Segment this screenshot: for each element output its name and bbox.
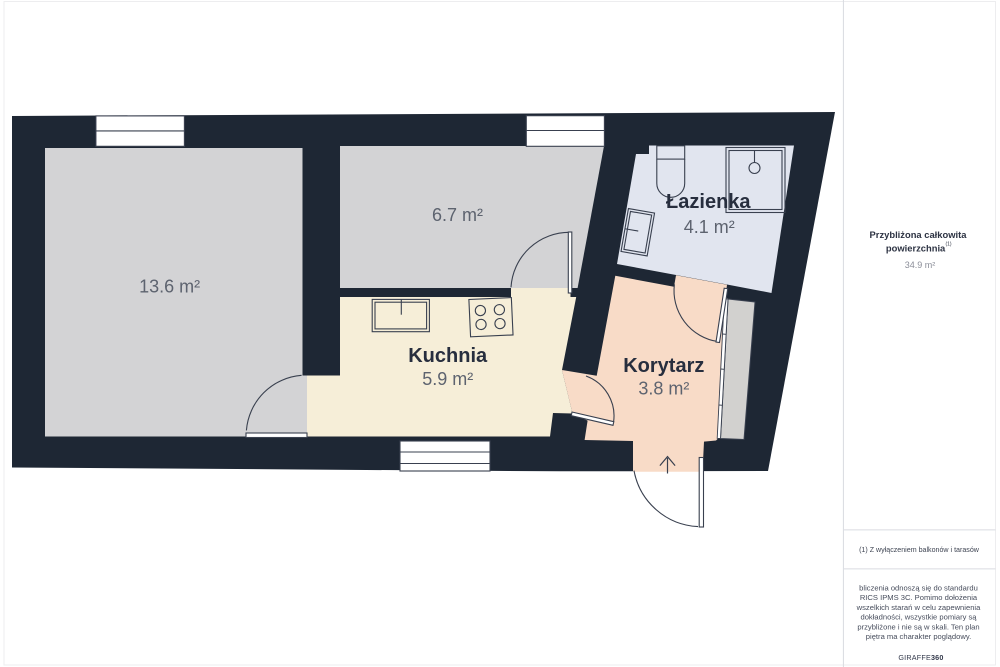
svg-text:Łazienka: Łazienka bbox=[666, 191, 751, 213]
svg-text:bliczenia odnoszą się do stand: bliczenia odnoszą się do standardu bbox=[859, 584, 978, 593]
svg-text:(1) Z wyłączeniem balkonów i t: (1) Z wyłączeniem balkonów i tarasów bbox=[859, 546, 980, 554]
svg-text:3.8 m²: 3.8 m² bbox=[638, 379, 689, 399]
svg-text:przybliżone i nie są w skali.: przybliżone i nie są w skali. Ten plan bbox=[857, 622, 979, 631]
svg-text:5.9 m²: 5.9 m² bbox=[422, 369, 473, 389]
svg-text:wszelkich starań w celu zapewn: wszelkich starań w celu zapewnienia bbox=[856, 603, 981, 612]
svg-text:6.7 m²: 6.7 m² bbox=[432, 205, 483, 225]
svg-text:13.6 m²: 13.6 m² bbox=[139, 276, 200, 296]
svg-text:34.9 m²: 34.9 m² bbox=[905, 260, 936, 270]
svg-text:RICS IPMS 3C. Pomimo dołożenia: RICS IPMS 3C. Pomimo dołożenia bbox=[860, 593, 978, 602]
svg-text:Kuchnia: Kuchnia bbox=[408, 345, 488, 367]
svg-text:Korytarz: Korytarz bbox=[623, 355, 704, 377]
svg-text:GIRAFFE360: GIRAFFE360 bbox=[898, 653, 943, 662]
svg-text:Przybliżona całkowita: Przybliżona całkowita bbox=[870, 229, 968, 240]
svg-text:(1): (1) bbox=[945, 242, 951, 248]
svg-text:piętra ma charakter poglądowy.: piętra ma charakter poglądowy. bbox=[866, 632, 971, 641]
svg-text:4.1 m²: 4.1 m² bbox=[684, 217, 735, 237]
svg-text:dokładności, wszystkie pomiary: dokładności, wszystkie pomiary są bbox=[860, 613, 977, 622]
svg-text:powierzchnia: powierzchnia bbox=[886, 243, 946, 254]
